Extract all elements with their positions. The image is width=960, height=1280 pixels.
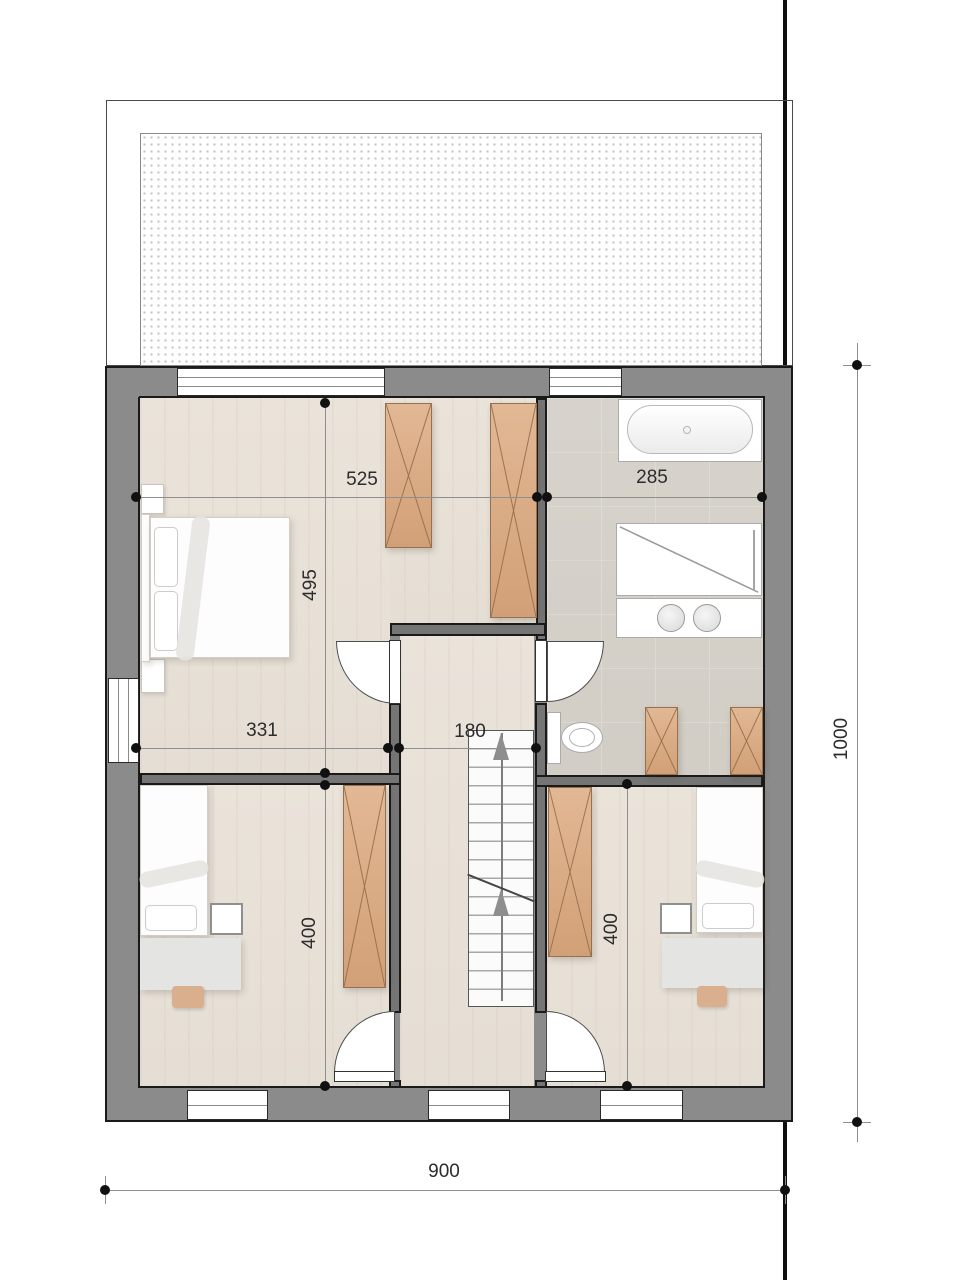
wall-bath-bedroomright <box>535 775 763 787</box>
shower <box>616 523 762 596</box>
dim-line-h-upper <box>136 497 762 498</box>
bathtub-drain <box>683 426 691 434</box>
dim-node <box>531 743 541 753</box>
stair-direction-arrow <box>493 889 509 916</box>
wardrobe-left <box>343 785 386 988</box>
dim-node <box>383 743 393 753</box>
dim-line-h-middle <box>136 748 536 749</box>
dim-node <box>131 743 141 753</box>
dim-node <box>852 360 862 370</box>
door-leaf-bedroom-left <box>334 1071 395 1082</box>
wardrobe-master-2 <box>490 403 537 618</box>
sink <box>693 604 721 632</box>
door-leaf-master <box>389 640 401 704</box>
dim-line-building-depth <box>857 365 858 1122</box>
stair-walk-line <box>501 733 503 1001</box>
window-stair-south <box>428 1090 510 1120</box>
window-bedroomright-south <box>600 1090 683 1120</box>
wall-inner-edge-bottom <box>139 1086 765 1088</box>
dim-label-building-width: 900 <box>428 1161 460 1183</box>
dim-label-bath-width: 285 <box>636 467 668 489</box>
chair-right <box>697 986 727 1007</box>
dim-line-v-master <box>325 403 326 1086</box>
dim-node <box>532 492 542 502</box>
bed-headboard <box>141 514 150 662</box>
wall-inner-edge-top <box>139 396 765 398</box>
floor-plan: 525 285 495 331 180 400 400 900 1000 <box>0 0 960 1280</box>
dim-node <box>622 779 632 789</box>
dim-node <box>852 1117 862 1127</box>
dim-label-room-right-depth: 400 <box>601 913 623 945</box>
dim-line-building-width <box>105 1190 785 1191</box>
dim-node <box>542 492 552 502</box>
window-bath-north <box>549 368 622 396</box>
dim-node <box>622 1081 632 1091</box>
window-bedroomleft-south <box>187 1090 268 1120</box>
chair-left <box>172 986 204 1008</box>
bathtub <box>618 399 762 462</box>
bed-left <box>140 785 208 936</box>
bed-right <box>696 787 763 933</box>
dim-label-room-left-width: 331 <box>246 720 278 742</box>
door-leaf-bathroom <box>535 640 547 702</box>
dim-line-v-right <box>627 784 628 1086</box>
dim-label-master-depth: 495 <box>300 569 322 601</box>
roof-terrace-hatch <box>140 133 762 366</box>
wall-master-bedroomleft <box>140 773 401 785</box>
toilet-cistern <box>547 712 561 764</box>
desk-right <box>662 938 763 988</box>
door-leaf-bedroom-right <box>545 1071 606 1082</box>
wall-hall-top <box>390 623 546 636</box>
toilet-bowl <box>561 722 603 753</box>
dim-node <box>100 1185 110 1195</box>
nightstand <box>141 484 164 514</box>
nightstand <box>210 903 243 935</box>
dim-node <box>757 492 767 502</box>
dim-node <box>320 768 330 778</box>
dim-node <box>320 398 330 408</box>
nightstand <box>141 659 165 693</box>
dim-label-stair-width: 180 <box>454 721 486 743</box>
bath-cabinet <box>730 707 763 775</box>
wall-bath-master <box>536 398 547 641</box>
sink <box>657 604 685 632</box>
dim-node <box>394 743 404 753</box>
dim-node <box>131 492 141 502</box>
dim-label-room-left-depth: 400 <box>299 917 321 949</box>
dim-label-master-width: 525 <box>346 469 378 491</box>
desk-left <box>140 938 241 990</box>
dim-node <box>780 1185 790 1195</box>
wardrobe-right <box>548 787 592 957</box>
window-master-north <box>177 368 385 396</box>
stair-direction-arrow <box>493 733 509 760</box>
dim-label-building-depth: 1000 <box>831 718 853 760</box>
dim-node <box>320 1081 330 1091</box>
nightstand <box>660 903 692 934</box>
dim-node <box>320 780 330 790</box>
vanity <box>616 598 762 638</box>
wardrobe-master-1 <box>385 403 432 548</box>
bed-master <box>150 517 290 658</box>
bath-cabinet <box>645 707 678 775</box>
